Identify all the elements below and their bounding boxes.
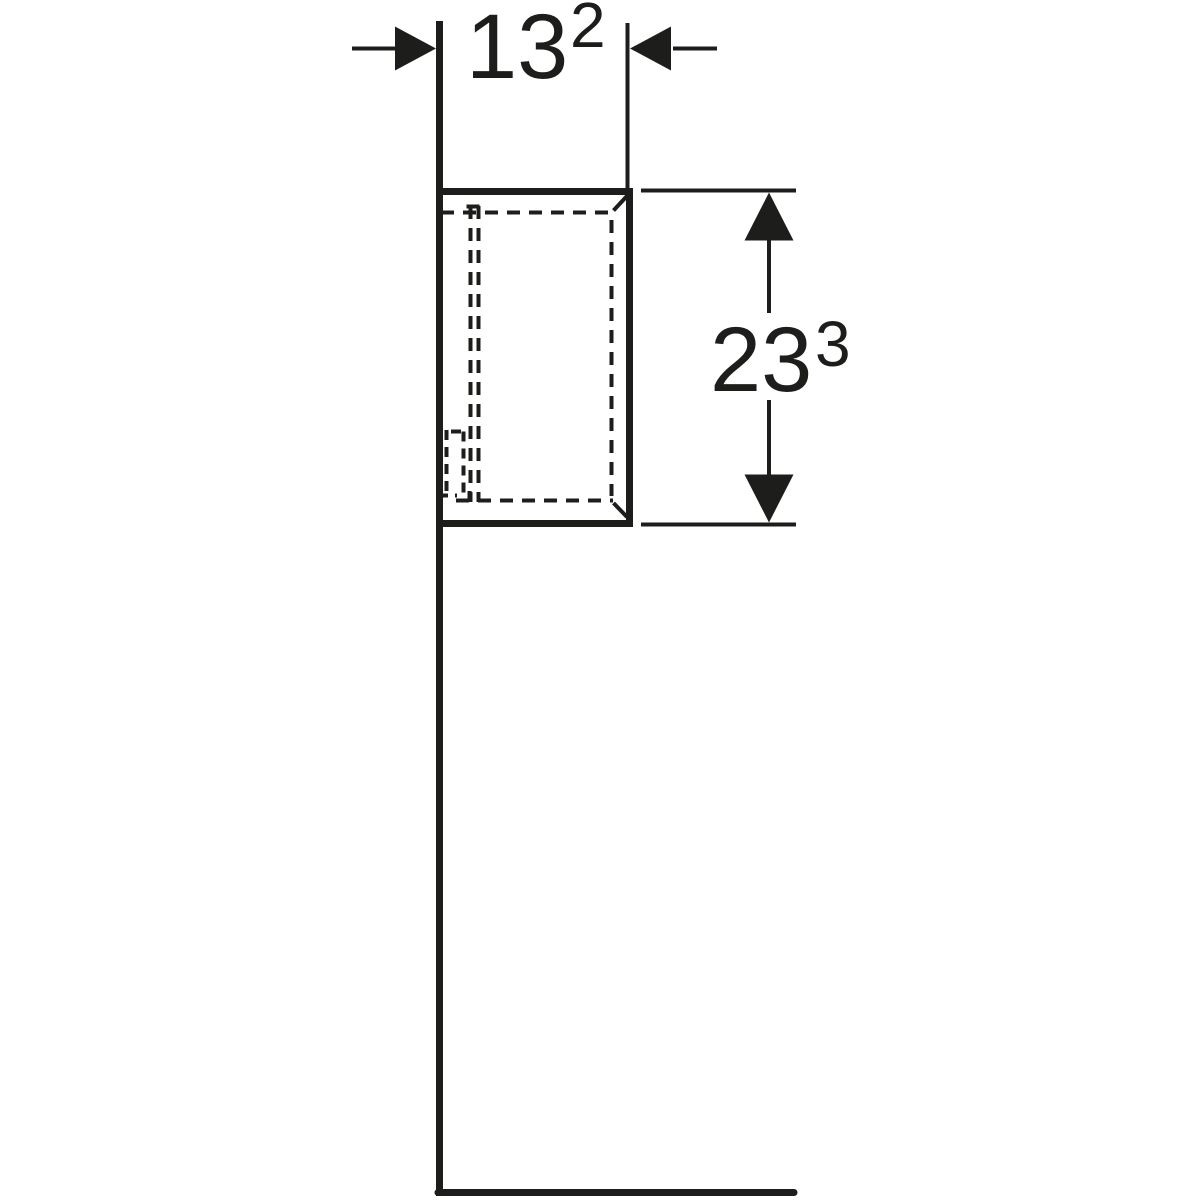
height-dim-arrow-up [745,193,794,241]
cabinet-hidden-edges [438,196,627,517]
height-dimension-label: 23 [710,309,812,411]
mounting-detail-bracket [451,432,473,504]
width-dim-arrow-right [630,27,671,71]
dimension-arrowheads [395,27,794,523]
width-dimension-label: 13 [466,0,568,98]
linework-heavy [436,21,794,1196]
dimension-linework [352,23,796,525]
drawing-canvas: 13 2 23 3 [0,0,1200,1200]
width-dim-arrow-left [395,27,436,71]
hidden-corner-dash-bottom [614,503,628,517]
height-dimension-superscript: 3 [815,308,851,380]
width-dimension-superscript: 2 [570,0,606,61]
hidden-corner-dash-top [614,196,628,211]
height-dim-arrow-down [745,475,794,523]
dimension-drawing: 13 2 23 3 [0,0,1200,1200]
